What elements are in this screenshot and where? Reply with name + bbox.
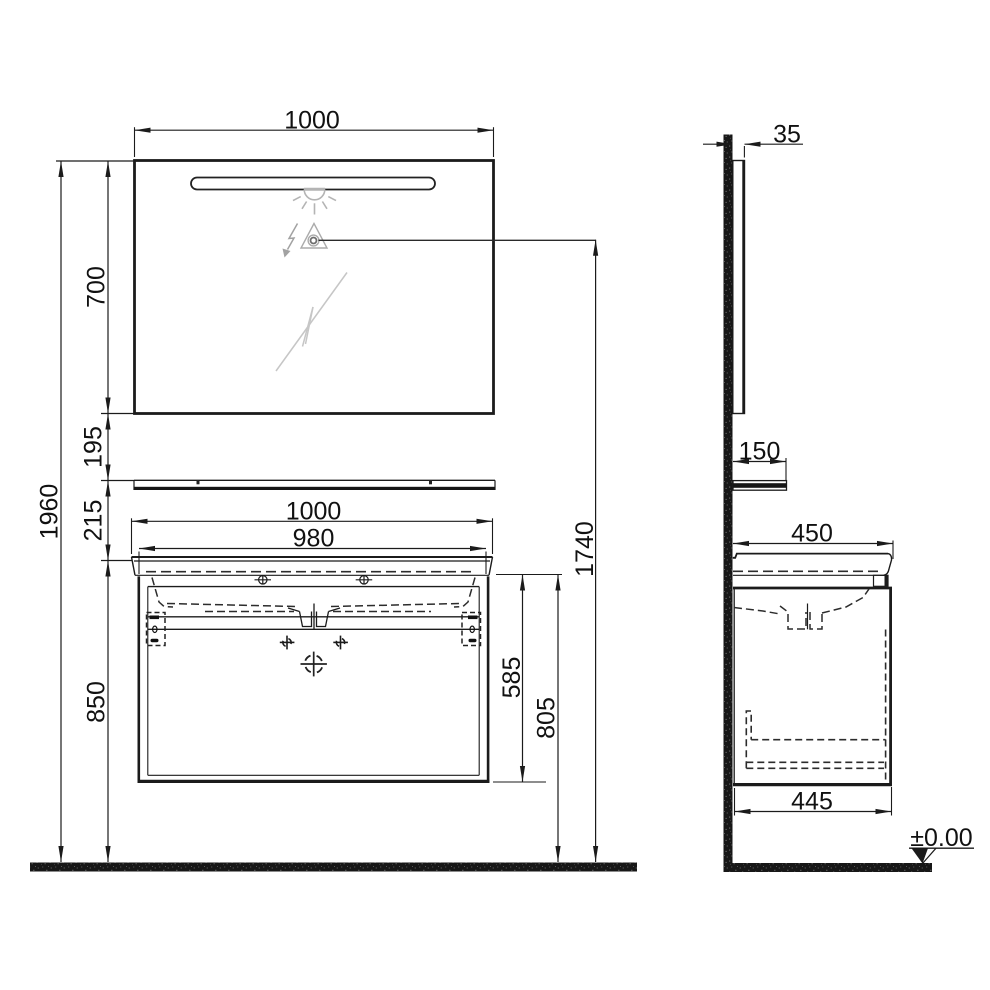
svg-text:1740: 1740	[571, 521, 599, 577]
svg-text:1960: 1960	[35, 484, 63, 540]
svg-text:195: 195	[79, 426, 107, 468]
svg-text:700: 700	[82, 266, 110, 308]
svg-text:805: 805	[532, 697, 560, 739]
svg-text:215: 215	[79, 500, 107, 542]
svg-text:585: 585	[498, 657, 526, 699]
svg-text:850: 850	[82, 681, 110, 723]
